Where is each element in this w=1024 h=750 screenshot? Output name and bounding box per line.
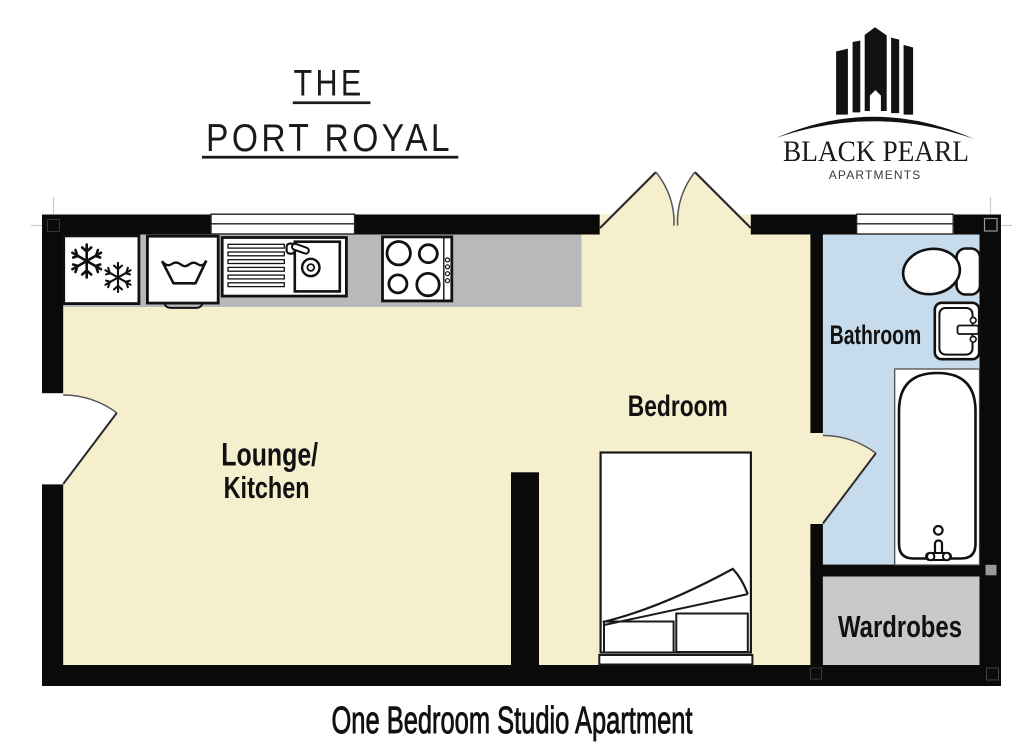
- svg-text:THE: THE: [294, 62, 365, 103]
- svg-text:Lounge/: Lounge/: [221, 436, 318, 472]
- svg-text:Wardrobes: Wardrobes: [838, 609, 962, 644]
- svg-text:PORT ROYAL: PORT ROYAL: [206, 117, 453, 160]
- svg-text:Bathroom: Bathroom: [830, 320, 922, 350]
- svg-text:Bedroom: Bedroom: [628, 390, 728, 423]
- svg-text:APARTMENTS: APARTMENTS: [829, 168, 921, 182]
- svg-text:BLACK PEARL: BLACK PEARL: [783, 135, 969, 168]
- svg-text:One Bedroom Studio Apartment: One Bedroom Studio Apartment: [332, 700, 693, 742]
- svg-text:Kitchen: Kitchen: [224, 470, 310, 505]
